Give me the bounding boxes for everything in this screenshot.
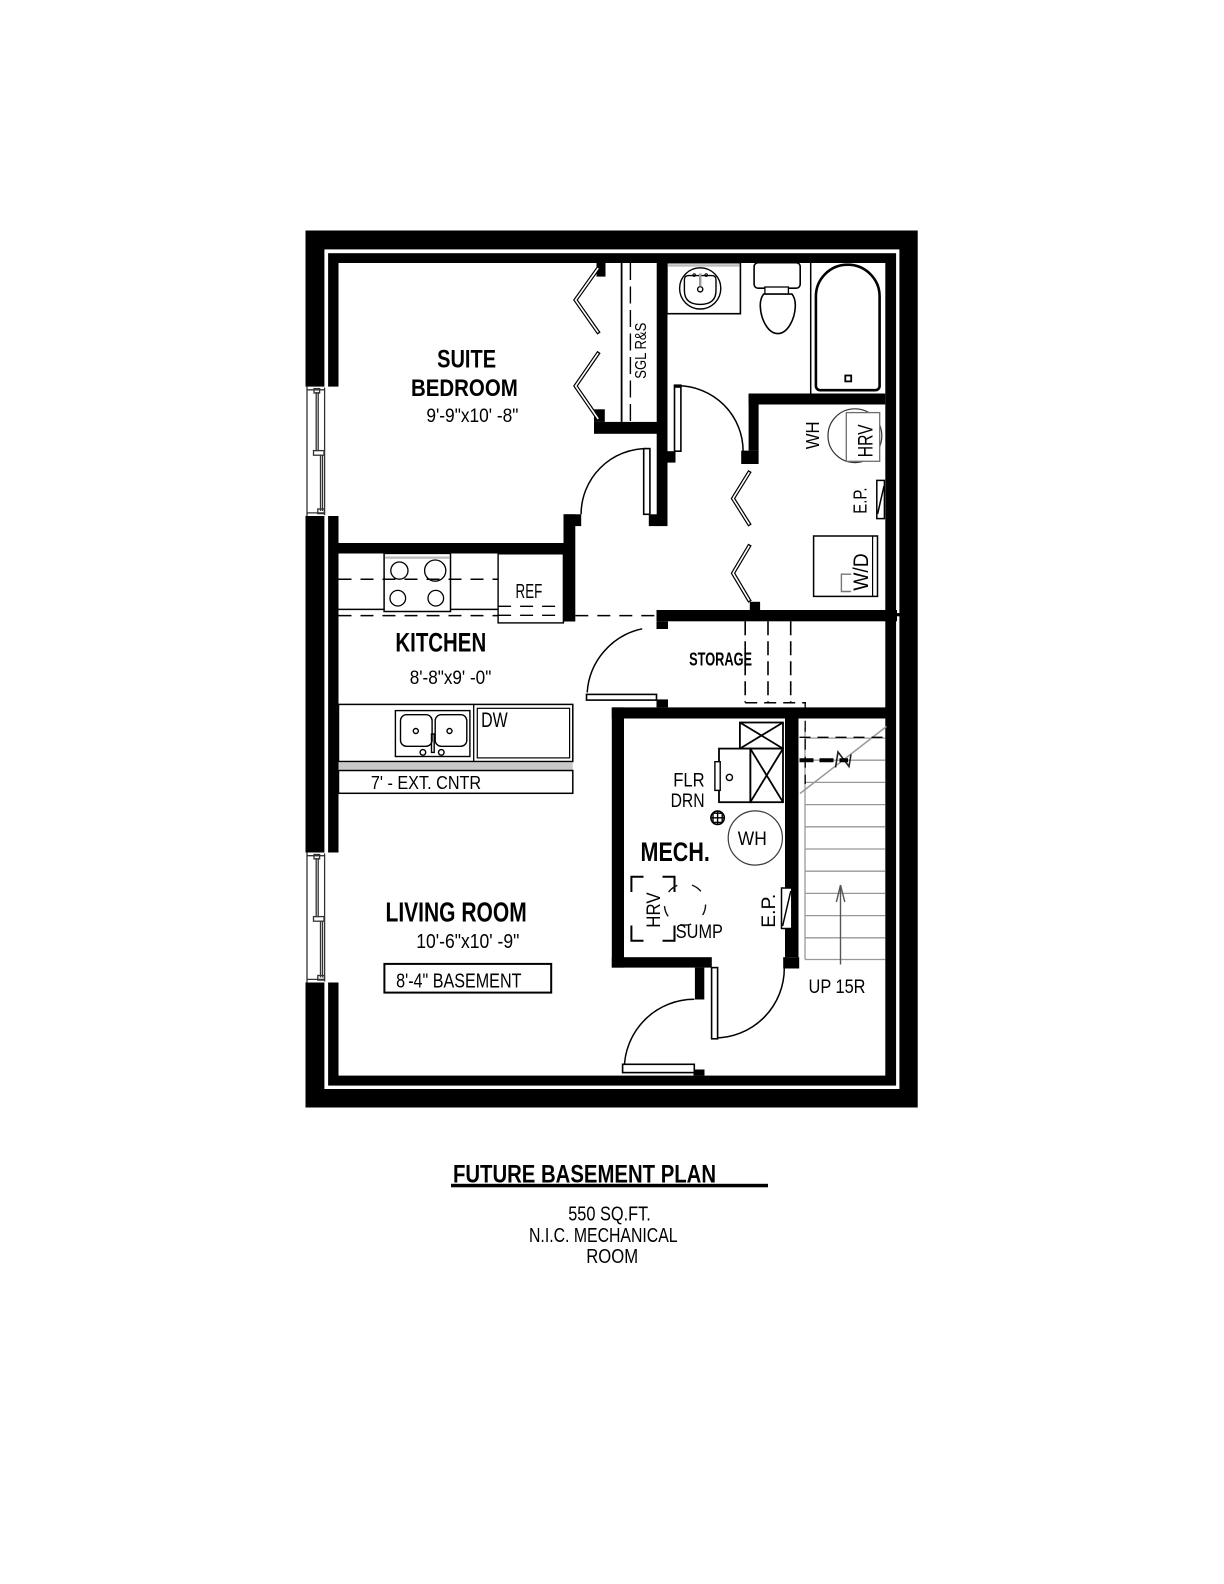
- svg-text:HRV: HRV: [644, 892, 665, 928]
- svg-text:W/D: W/D: [850, 553, 873, 591]
- svg-text:UP 15R: UP 15R: [809, 977, 866, 998]
- svg-text:DRN: DRN: [671, 791, 705, 812]
- svg-text:550 SQ.FT.: 550 SQ.FT.: [568, 1204, 651, 1226]
- svg-text:7' - EXT. CNTR: 7' - EXT. CNTR: [371, 772, 481, 793]
- svg-text:LIVING ROOM: LIVING ROOM: [386, 896, 527, 927]
- svg-text:8'-8"x9' -0": 8'-8"x9' -0": [410, 668, 492, 689]
- svg-text:SUITE: SUITE: [437, 345, 496, 373]
- svg-text:ROOM: ROOM: [586, 1246, 638, 1268]
- svg-text:WH: WH: [738, 829, 767, 850]
- svg-text:8'-4" BASEMENT: 8'-4" BASEMENT: [396, 970, 521, 992]
- svg-text:REF: REF: [516, 581, 543, 603]
- svg-text:STORAGE: STORAGE: [689, 649, 752, 670]
- svg-text:N.I.C. MECHANICAL: N.I.C. MECHANICAL: [529, 1225, 678, 1247]
- svg-text:KITCHEN: KITCHEN: [395, 627, 486, 657]
- svg-text:DW: DW: [481, 709, 508, 732]
- svg-text:FLR: FLR: [673, 770, 704, 791]
- svg-text:9'-9"x10' -8": 9'-9"x10' -8": [426, 406, 518, 427]
- svg-text:10'-6"x10' -9": 10'-6"x10' -9": [416, 931, 519, 953]
- svg-text:HRV: HRV: [855, 424, 878, 457]
- svg-text:SUMP: SUMP: [676, 922, 723, 943]
- svg-text:MECH.: MECH.: [641, 837, 710, 867]
- svg-text:SGL R&S: SGL R&S: [633, 323, 650, 379]
- svg-text:E.P.: E.P.: [850, 487, 870, 513]
- svg-text:E.P.: E.P.: [759, 894, 780, 928]
- svg-text:BEDROOM: BEDROOM: [411, 375, 518, 402]
- svg-text:WH: WH: [803, 421, 823, 449]
